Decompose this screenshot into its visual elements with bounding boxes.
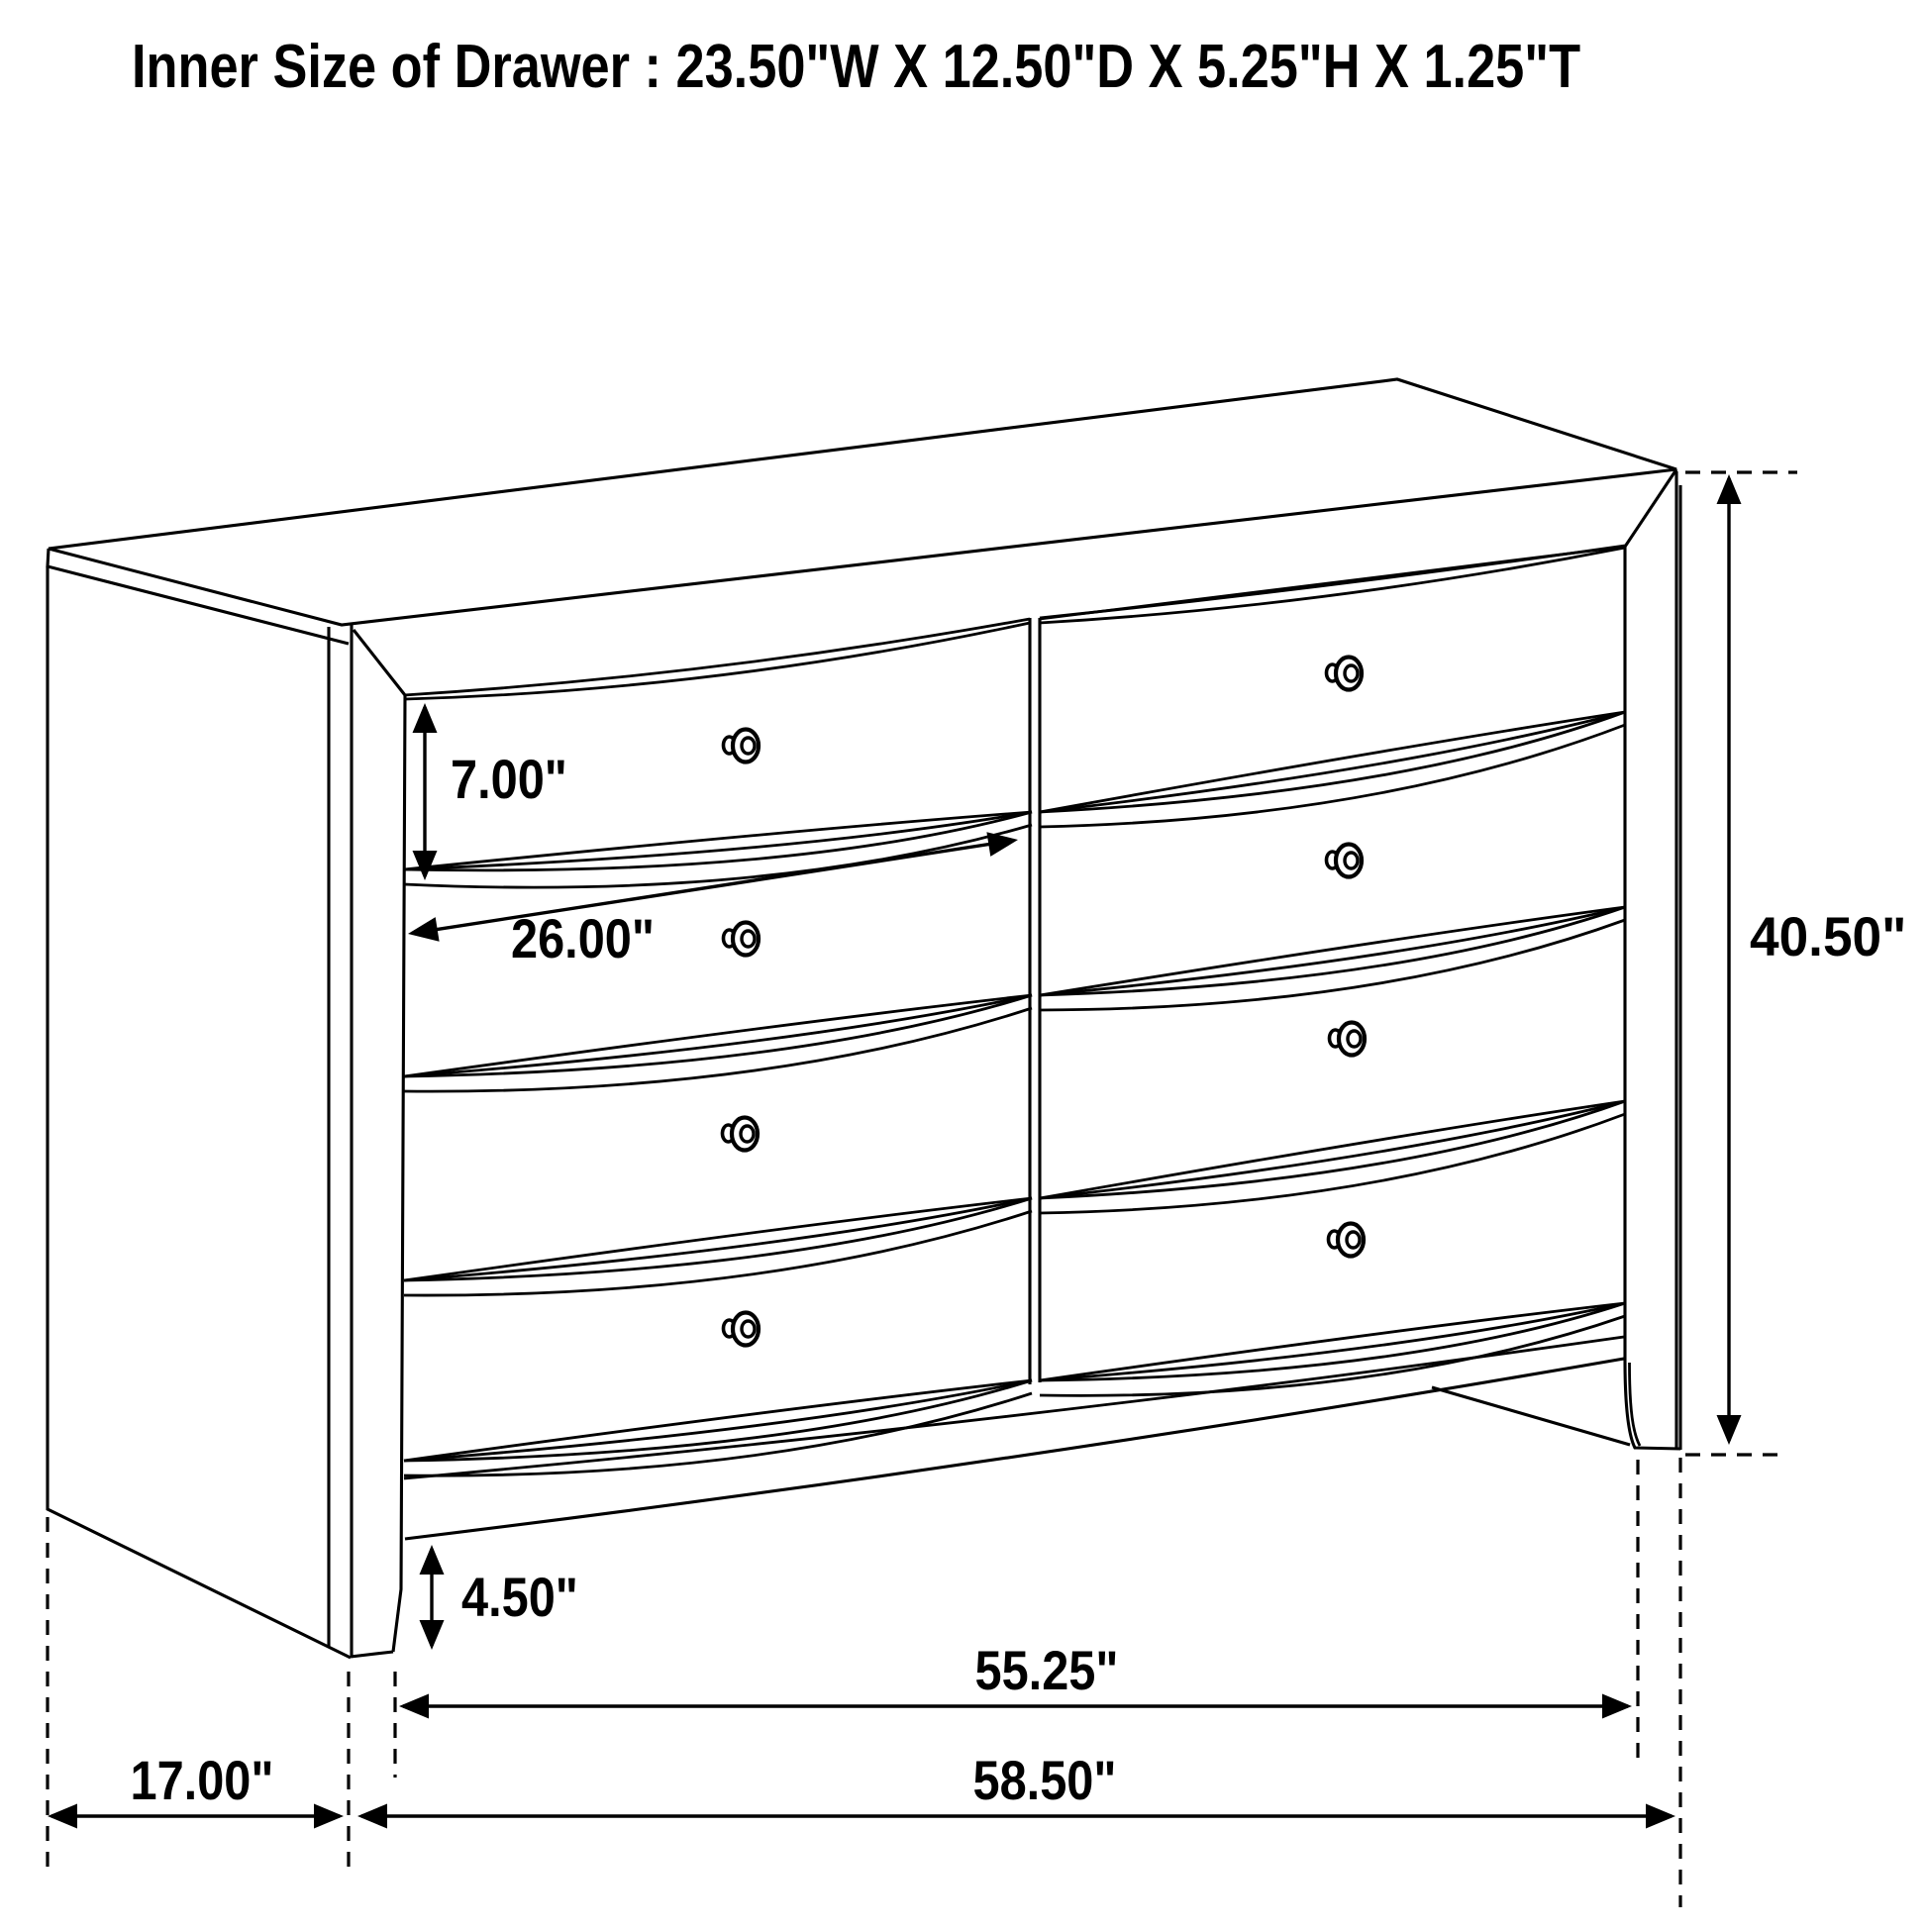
svg-text:26.00": 26.00" (511, 908, 655, 970)
svg-text:55.25": 55.25" (975, 1640, 1119, 1702)
svg-text:Inner Size of Drawer : 23.50"W: Inner Size of Drawer : 23.50"W X 12.50"D… (132, 33, 1580, 101)
svg-text:17.00": 17.00" (131, 1750, 274, 1812)
svg-text:4.50": 4.50" (461, 1567, 578, 1629)
svg-text:58.50": 58.50" (973, 1750, 1117, 1812)
svg-text:40.50": 40.50" (1750, 906, 1906, 968)
svg-text:7.00": 7.00" (451, 749, 567, 811)
